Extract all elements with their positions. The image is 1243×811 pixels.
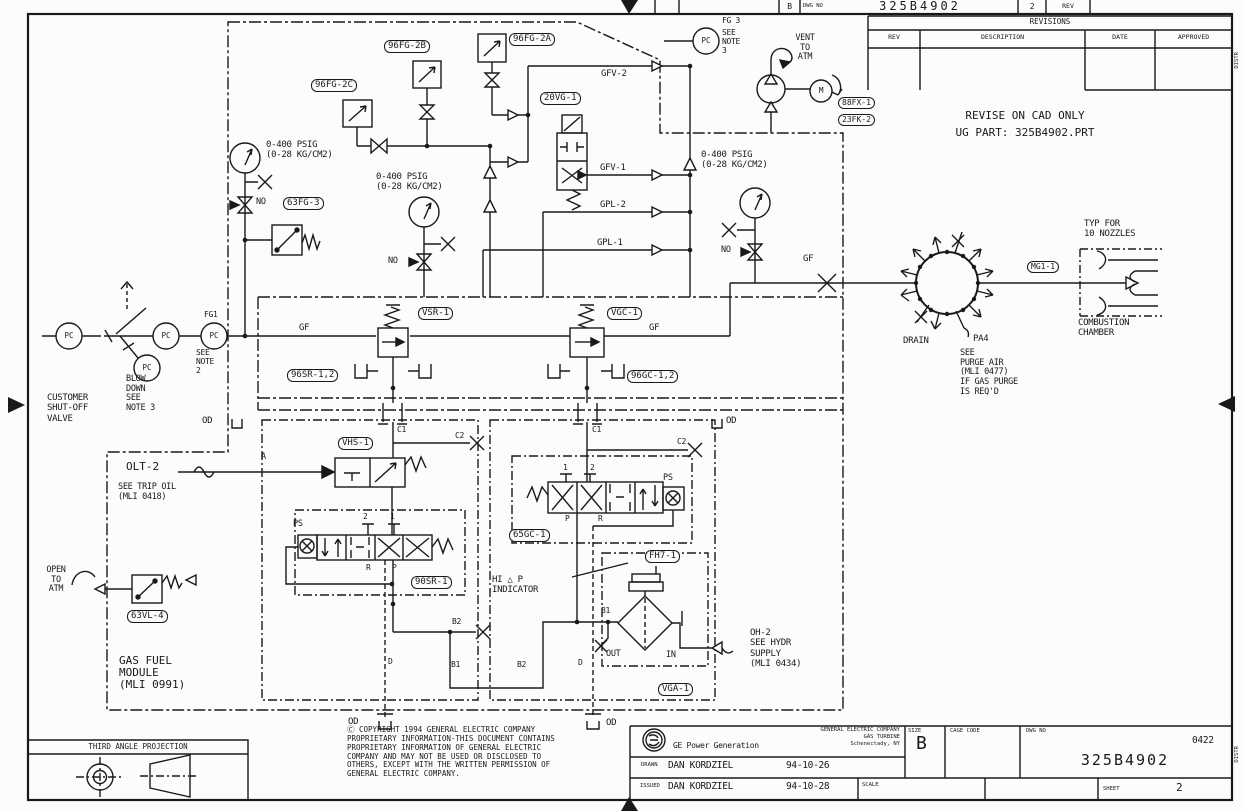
gauge-range-center: 0-400 PSIG (0-28 KG/CM2) [376,172,443,193]
open-to-atm: OPEN TO ATM [38,566,74,595]
port-d-left: D [388,657,393,666]
hi-dp-indicator: HI △ P INDICATOR [492,575,538,596]
distr-bottom: DISTR [1234,746,1240,763]
tag-96fg-2c: 96FG-2C [311,79,357,92]
line-gfv-1: GFV-1 [600,163,626,173]
trip-oil-note: SEE TRIP OIL (MLI 0418) [118,483,176,502]
revisions-col-date: DATE [1085,34,1155,41]
see-note-3: SEE NOTE 3 [722,28,740,55]
revisions-col-description: DESCRIPTION [920,34,1085,41]
tag-65gc-1: 65GC-1 [509,529,550,542]
pc-instrument-4: PC [138,364,156,373]
top-strip-sheet: 2 [1018,2,1046,11]
company-block: GENERAL ELECTRIC COMPANY GAS TURBINE Sch… [788,727,900,748]
cage-code-label: CAGE CODE [950,728,980,734]
dwg-code: 0422 [1192,736,1214,747]
issued-date: 94-10-28 [786,782,829,793]
pc-instrument-5: PC [697,37,715,46]
port-b1-right: B1 [601,606,610,615]
pc-instrument-2: PC [157,332,175,341]
revisions-col-approved: APPROVED [1155,34,1232,41]
gf-label-1: GF [299,323,309,333]
no-label-center: NO [388,257,398,267]
line-gpl-1: GPL-1 [597,238,623,248]
gauge-range-right: 0-400 PSIG (0-28 KG/CM2) [701,150,768,171]
gf-label-3: GF [803,254,813,264]
tag-96fg-2a: 96FG-2A [509,33,555,46]
issued-name: DAN KORDZIEL [668,782,733,793]
fg1-label: FG1 [204,310,218,319]
copyright-block: Ⓒ COPYRIGHT 1994 GENERAL ELECTRIC COMPAN… [347,726,555,779]
revisions-title: REVISIONS [868,18,1232,27]
port-c2-right: C2 [677,437,686,446]
port-b2-upper: B2 [452,617,461,626]
drain-label: DRAIN [903,336,929,346]
sheet-label: SHEET [1103,786,1120,792]
olt2-label: OLT-2 [126,461,159,474]
tag-mg1-1: MG1-1 [1027,261,1059,273]
gf-label-2: GF [649,323,659,333]
port-90sr-1: 1 [390,512,395,521]
revisions-col-rev: REV [868,34,920,41]
purge-note: SEE PURGE AIR (MLI 0477) IF GAS PURGE IS… [960,349,1018,397]
pc-instrument-1: PC [60,332,78,341]
no-label-left: NO [256,198,266,208]
port-65gc-1: 1 [563,463,568,472]
typ-nozzles-note: TYP FOR 10 NOZZLES [1084,219,1135,240]
ps-label-left: PS [293,520,303,530]
combustion-chamber-label: COMBUSTION CHAMBER [1078,318,1129,339]
scale-label: SCALE [862,782,879,788]
pa4-label: PA4 [973,334,988,344]
size-value: B [916,734,927,755]
top-strip-size: B [779,2,800,11]
top-strip-rev: REV [1046,3,1090,10]
port-c2-left: C2 [455,431,464,440]
tag-vhs-1: VHS-1 [338,437,373,450]
tag-20vg-1: 20VG-1 [540,92,581,105]
port-b2-lower: B2 [517,660,526,669]
vent-to-atm: VENT TO ATM [788,34,822,63]
module-label: GAS FUEL MODULE (MLI 0991) [119,655,185,691]
port-out: OUT [606,650,620,660]
drawn-label: DRAWN [641,762,658,768]
drawn-date: 94-10-26 [786,761,829,772]
port-b1-lower: B1 [451,660,460,669]
distr-top: DISTR [1234,52,1240,69]
port-a: A [261,453,266,463]
tag-96sr-12: 96SR-1,2 [287,369,338,382]
third-angle-label: THIRD ANGLE PROJECTION [32,743,244,752]
port-in: IN [666,651,676,661]
tag-23fk-2: 23FK-2 [838,114,875,126]
tag-vsr-1: VSR-1 [418,307,453,320]
port-90sr-p: P [392,563,397,572]
port-c1-right: C1 [592,425,601,434]
cad-note: REVISE ON CAD ONLY UG PART: 325B4902.PRT [910,108,1140,141]
pc-instrument-3: PC [205,332,223,341]
see-note-2: SEE NOTE 2 [196,348,214,375]
customer-valve-label: CUSTOMER SHUT-OFF VALVE [47,393,88,424]
od-label-4: OD [606,718,616,728]
tag-96fg-2b: 96FG-2B [384,40,430,53]
port-65gc-p: P [565,514,570,523]
ps-label-right: PS [663,474,673,484]
line-gpl-2: GPL-2 [600,200,626,210]
gauge-range-left: 0-400 PSIG (0-28 KG/CM2) [266,140,333,161]
issued-label: ISSUED [640,783,660,789]
port-65gc-r: R [598,514,603,523]
fg3-label: FG 3 [722,16,740,25]
od-label-1: OD [202,416,212,426]
port-65gc-2: 2 [590,463,595,472]
drawing-sheet: B DWG NO 325B4902 2 REV REVISIONS REV DE… [0,0,1243,811]
tag-63fg-3: 63FG-3 [283,197,324,210]
oh2-note: OH-2 SEE HYDR SUPPLY (MLI 0434) [750,628,801,669]
tag-96gc-12: 96GC-1,2 [627,370,678,383]
ge-power-generation: GE Power Generation [673,741,759,750]
tag-90sr-1: 90SR-1 [411,576,452,589]
line-gfv-2: GFV-2 [601,69,627,79]
port-90sr-r: R [366,563,371,572]
tag-vgc-1: VGC-1 [607,307,642,320]
port-90sr-2: 2 [363,512,368,521]
top-strip-dwg-no: 325B4902 [822,0,1018,14]
tag-63vl-4: 63VL-4 [127,610,168,623]
dwg-no-label: DWG NO [1026,728,1046,734]
sheet-value: 2 [1176,782,1183,795]
blowdown-note: BLOW DOWN SEE NOTE 3 [126,375,155,414]
od-label-2: OD [726,416,736,426]
dwg-no-value: 325B4902 [1050,752,1200,769]
tag-vga-1: VGA-1 [658,683,693,696]
port-c1-left: C1 [397,425,406,434]
top-strip-dwg-label: DWG NO [803,3,823,9]
port-d-right: D [578,658,583,667]
tag-fh7-1: FH7-1 [645,550,680,563]
tag-88fx-1: 88FX-1 [838,97,875,109]
drawn-name: DAN KORDZIEL [668,761,733,772]
no-label-right: NO [721,246,731,256]
motor-letter: M [816,86,826,95]
